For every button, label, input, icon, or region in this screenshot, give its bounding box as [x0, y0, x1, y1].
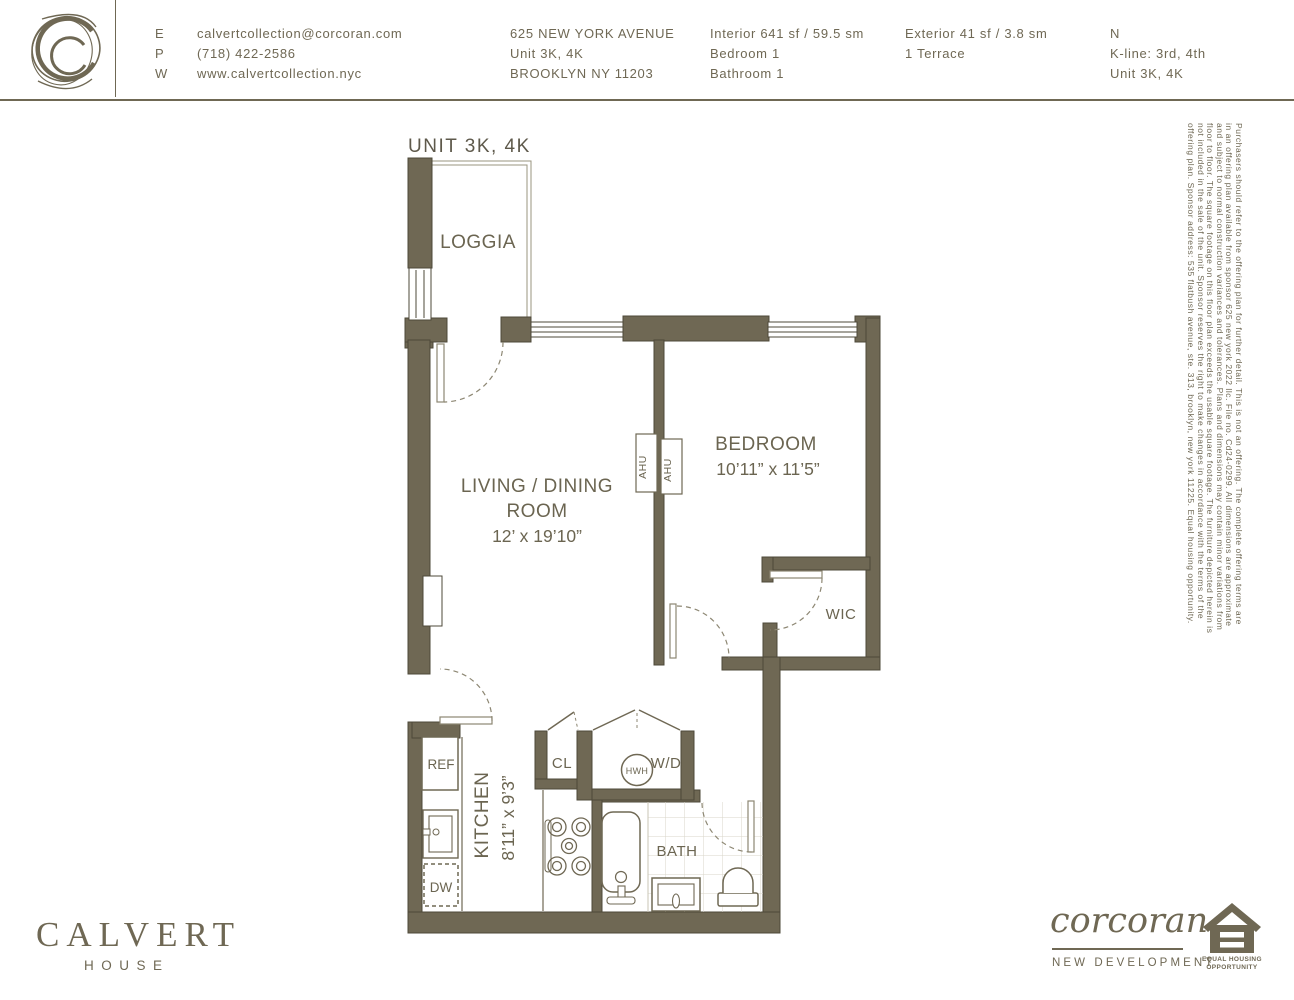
toilet-base: [718, 893, 758, 906]
header-interior-stats: Interior 641 sf / 59.5 sm Bedroom 1 Bath…: [710, 24, 864, 84]
loggia-door-arc: [444, 342, 503, 402]
wd-bifold-right: [639, 710, 680, 730]
north-indicator: N: [1110, 24, 1206, 44]
room-dims-kitchen: 8’11” x 9’3”: [498, 775, 518, 860]
wall-hall-right: [763, 657, 780, 912]
corcoran-rule: [1052, 948, 1183, 950]
wall-wd-bottom: [592, 789, 693, 800]
wall-cl-wd-divider: [577, 731, 592, 800]
building-subname: HOUSE: [84, 958, 170, 973]
loggia-door-leaf: [437, 344, 444, 402]
wall-loggia-left: [408, 158, 432, 268]
disclaimer-line: in an offering plan available from spons…: [1224, 123, 1234, 805]
eho-line1: EQUAL HOUSING: [1196, 956, 1268, 964]
label-ahu-right: AHU: [662, 458, 674, 482]
header-exterior-stats: Exterior 41 sf / 3.8 sm 1 Terrace: [905, 24, 1048, 64]
wall-living-bedroom-divider: [654, 340, 664, 665]
bathtub-faucet-base: [607, 897, 635, 904]
bath-door-leaf: [748, 801, 754, 852]
eho-equals-bottom: [1220, 942, 1244, 948]
room-label-loggia: LOGGIA: [440, 232, 516, 253]
bathtub-faucet-stem: [618, 886, 625, 898]
disclaimer-line: and subject to normal construction varia…: [1214, 123, 1224, 805]
kitchen-faucet-knob: [433, 829, 439, 835]
web-value: www.calvertcollection.nyc: [197, 64, 362, 84]
label-ahu-left: AHU: [637, 455, 649, 479]
plan-title: UNIT 3K, 4K: [408, 136, 531, 157]
room-label-living-line1: LIVING / DINING: [461, 476, 613, 497]
eho-body: [1210, 925, 1254, 953]
wd-bifold-left: [593, 710, 635, 730]
room-label-wic: WIC: [826, 606, 857, 623]
address-line2: Unit 3K, 4K: [510, 44, 675, 64]
legal-disclaimer: Purchasers should refer to the offering …: [1185, 123, 1243, 805]
contact-email-row: E calvertcollection@corcoran.com: [155, 24, 402, 44]
living-window: [531, 322, 623, 337]
contact-phone-row: P (718) 422-2586: [155, 44, 402, 64]
room-dims-bedroom: 10’11” x 11’5”: [716, 459, 820, 479]
web-label: W: [155, 64, 197, 84]
phone-label: P: [155, 44, 197, 64]
floorplan-flyer-page: { "header": { "logo": "calvert-collectio…: [0, 0, 1294, 1000]
bedroom-door-arc: [677, 606, 729, 658]
wall-niche: [423, 576, 442, 626]
eho-equals-top: [1220, 932, 1244, 938]
wic-door-arc: [770, 578, 822, 630]
wall-bedroom-bottom: [722, 657, 880, 670]
email-label: E: [155, 24, 197, 44]
corcoran-new-development: NEW DEVELOPMENT: [1052, 957, 1215, 969]
entry-door-leaf: [440, 717, 492, 724]
equal-housing-icon: [1203, 903, 1261, 953]
wall-bottom: [408, 912, 780, 933]
wic-door-leaf: [770, 571, 822, 578]
bath-sink-faucet: [673, 894, 680, 908]
exterior-sf: Exterior 41 sf / 3.8 sm: [905, 24, 1048, 44]
header-contact-block: E calvertcollection@corcoran.com P (718)…: [155, 24, 402, 84]
address-line1: 625 NEW YORK AVENUE: [510, 24, 675, 44]
interior-sf: Interior 641 sf / 59.5 sm: [710, 24, 864, 44]
wall-kitchen-left: [408, 722, 422, 912]
wall-right: [866, 318, 880, 670]
disclaimer-line: Purchasers should refer to the offering …: [1233, 123, 1243, 805]
bathtub-drain: [616, 872, 627, 883]
label-cl: CL: [552, 755, 572, 772]
terrace-count: 1 Terrace: [905, 44, 1048, 64]
label-hwh: HWH: [626, 766, 648, 776]
room-label-bedroom: BEDROOM: [715, 434, 817, 455]
wall-wic-top: [762, 557, 870, 570]
room-label-kitchen: KITCHEN: [472, 772, 493, 859]
disclaimer-line: not included in the sale of the unit. Sp…: [1195, 123, 1205, 805]
header-rule: [0, 99, 1294, 101]
bedroom-door-leaf: [670, 604, 676, 658]
calvert-collection-logo: [22, 5, 110, 97]
room-dims-living: 12’ x 19’10”: [492, 526, 582, 546]
bedroom-count: Bedroom 1: [710, 44, 864, 64]
phone-value: (718) 422-2586: [197, 44, 296, 64]
floor-plan-svg: UNIT 3K, 4K: [400, 130, 900, 940]
contact-web-row: W www.calvertcollection.nyc: [155, 64, 402, 84]
label-ref: REF: [428, 757, 455, 772]
bathroom-count: Bathroom 1: [710, 64, 864, 84]
equal-housing-text: EQUAL HOUSING OPPORTUNITY: [1196, 956, 1268, 972]
kitchen-sink-basin: [429, 816, 452, 852]
header-unit-stats: N K-line: 3rd, 4th Unit 3K, 4K: [1110, 24, 1206, 84]
loggia-window: [409, 268, 431, 320]
cl-door-panel: [548, 712, 574, 730]
wall-top-left-pier: [405, 318, 447, 342]
building-name: CALVERT: [36, 915, 241, 955]
bedroom-window: [768, 322, 857, 337]
kline-floors: K-line: 3rd, 4th: [1110, 44, 1206, 64]
room-label-living-line2: ROOM: [506, 501, 567, 522]
kitchen-faucet: [423, 829, 430, 835]
disclaimer-line: offering plan. Sponsor address: 535 flat…: [1185, 123, 1195, 805]
unit-numbers: Unit 3K, 4K: [1110, 64, 1206, 84]
wall-tub-alcove-left: [592, 790, 602, 912]
label-dw: DW: [430, 880, 453, 895]
cl-door-dash: [574, 712, 578, 730]
header-divider: [115, 0, 116, 97]
email-value: calvertcollection@corcoran.com: [197, 24, 402, 44]
wall-wd-right: [681, 731, 694, 800]
wall-window-pier: [501, 317, 531, 342]
header-address-block: 625 NEW YORK AVENUE Unit 3K, 4K BROOKLYN…: [510, 24, 675, 84]
label-wd: W/D: [651, 755, 682, 772]
corcoran-wordmark: corcoran: [1050, 901, 1208, 941]
address-line3: BROOKLYN NY 11203: [510, 64, 675, 84]
entry-door-arc: [440, 669, 492, 721]
stove-burners: [548, 818, 590, 875]
eho-line2: OPPORTUNITY: [1196, 964, 1268, 972]
room-label-bath: BATH: [657, 843, 698, 860]
wall-top-center: [623, 316, 769, 341]
toilet-bowl: [723, 868, 753, 893]
disclaimer-line: floor to floor. The square footage on th…: [1205, 123, 1215, 805]
